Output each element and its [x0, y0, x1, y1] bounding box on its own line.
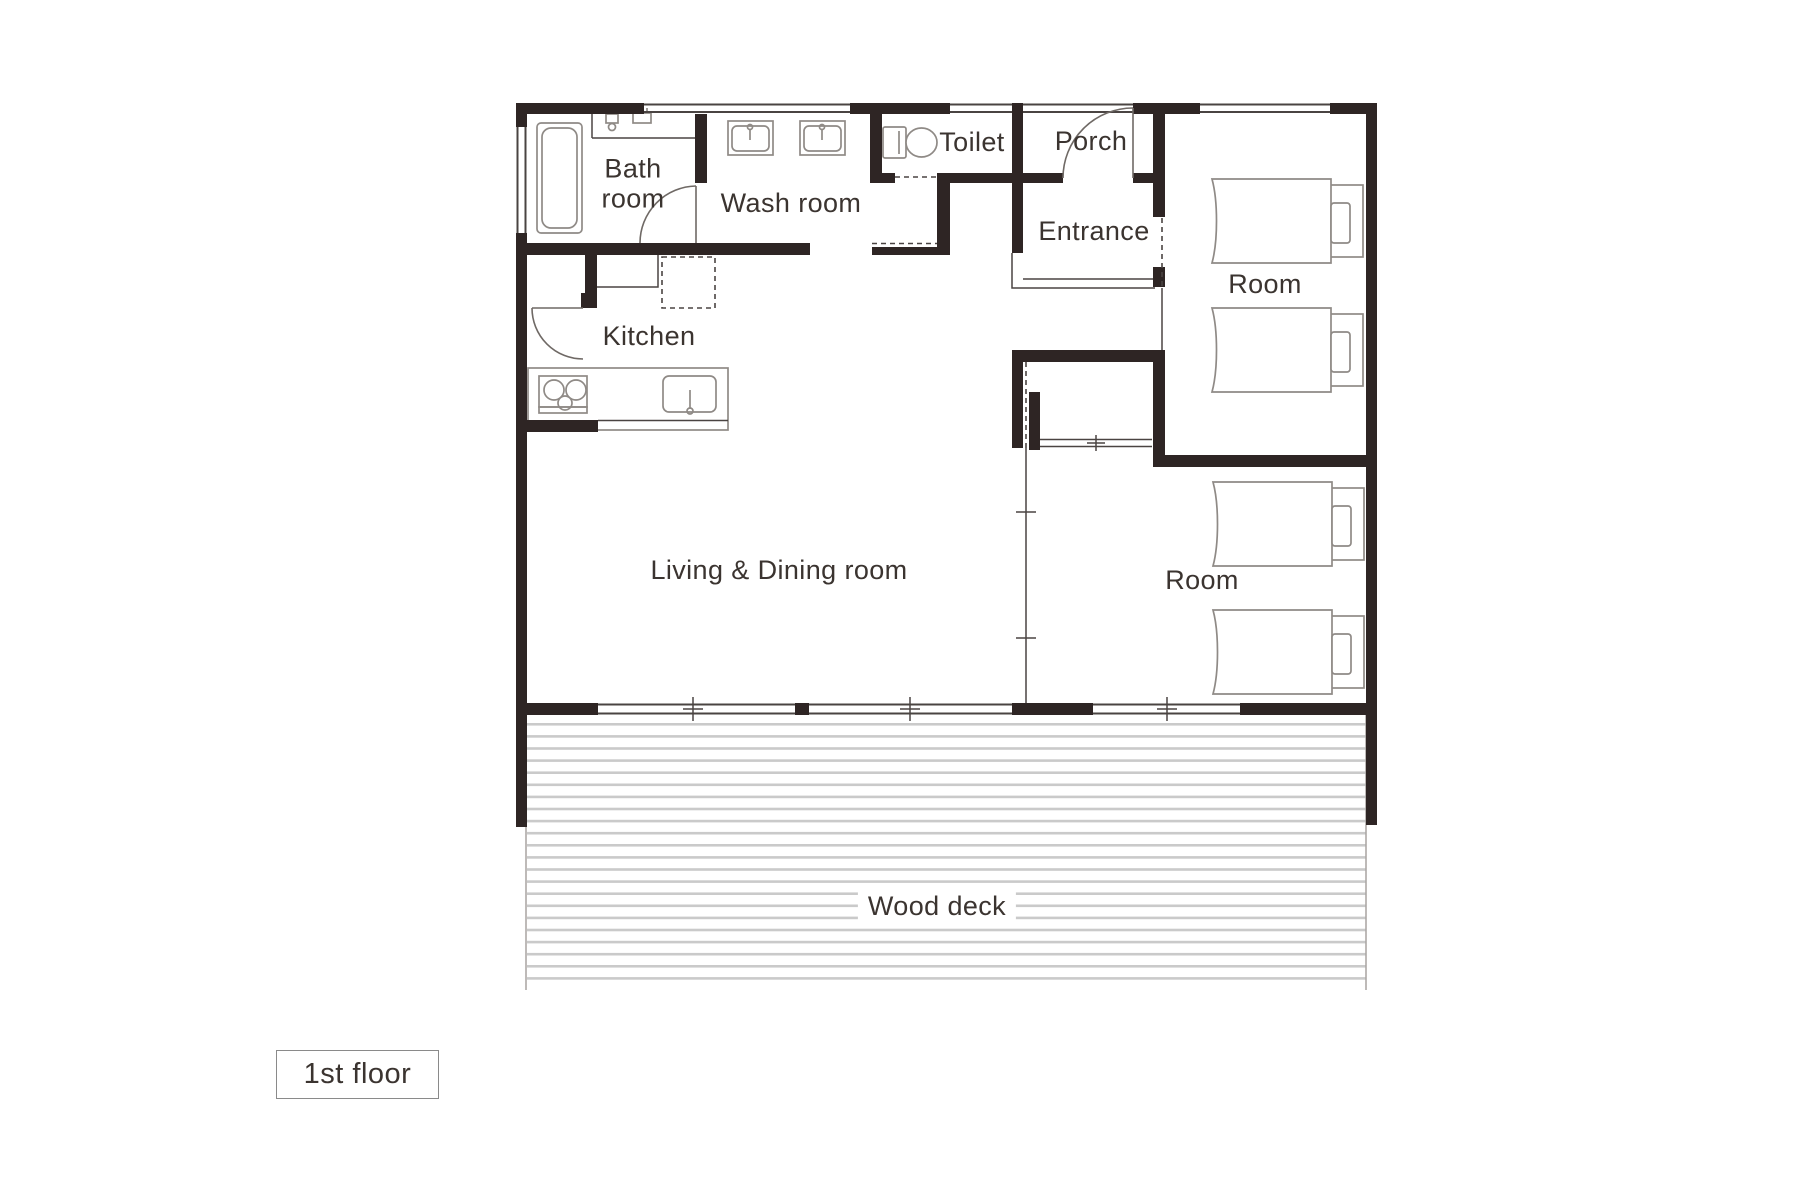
- floor-plan: Bath room Wash room Toilet Porch Entranc…: [0, 0, 1800, 1200]
- wall-segment: [850, 103, 950, 114]
- wall-segment: [870, 114, 882, 183]
- deck-board-line: [527, 808, 1366, 811]
- deck-board-line: [527, 747, 1366, 750]
- deck-board-line: [527, 929, 1366, 932]
- washroom-sinks: [728, 121, 845, 155]
- wall-segment: [1012, 103, 1023, 253]
- wall-segment: [1023, 173, 1063, 183]
- wall-segment: [795, 703, 809, 715]
- closet-wall: [1012, 350, 1023, 448]
- closet-pocket-wall: [1029, 392, 1040, 450]
- wall-segment: [516, 103, 644, 114]
- room-label-porch: Porch: [1055, 127, 1128, 157]
- shower-tap-icon: [609, 124, 616, 131]
- deck-board-line: [527, 965, 1366, 968]
- shower-tap-icon: [606, 114, 618, 123]
- wall-segment: [516, 703, 598, 715]
- deck-board-line: [527, 771, 1366, 774]
- bed-pillow: [1332, 506, 1351, 546]
- toilet-bowl: [906, 128, 937, 157]
- shower-mixer-icon: [633, 113, 651, 123]
- bed-blanket: [1212, 308, 1331, 392]
- bed-pillow: [1331, 332, 1350, 372]
- deck-board-line: [527, 880, 1366, 883]
- wall-segment: [1133, 103, 1200, 114]
- closet-wall: [1012, 350, 1163, 362]
- deck-board-line: [527, 735, 1366, 738]
- room-label-room-top: Room: [1228, 270, 1302, 300]
- deck-board-line: [527, 723, 1366, 726]
- bathtub: [537, 123, 582, 233]
- bathroom-label-line2: room: [601, 184, 664, 214]
- wall-segment: [1240, 703, 1377, 715]
- wall-segment: [695, 114, 707, 183]
- bathroom-label-line1: Bath: [601, 154, 664, 184]
- bed-pillow: [1332, 634, 1351, 674]
- wall-segment: [937, 177, 950, 255]
- room-label-room-bottom: Room: [1165, 566, 1239, 596]
- deck-board-line: [527, 868, 1366, 871]
- wall-segment: [516, 233, 527, 827]
- deck-board-line: [527, 796, 1366, 799]
- bed-blanket: [1212, 179, 1331, 263]
- kitchen-nook-line: [597, 255, 658, 287]
- floor-title-box: 1st floor: [276, 1050, 439, 1099]
- room-label-washroom: Wash room: [721, 189, 862, 219]
- room-label-kitchen: Kitchen: [603, 322, 696, 352]
- deck-board-line: [527, 844, 1366, 847]
- wall-segment: [1153, 267, 1165, 287]
- deck-board-line: [527, 832, 1366, 835]
- deck-board-line: [527, 820, 1366, 823]
- wall-segment: [581, 293, 597, 308]
- toilet-fixture: [883, 127, 937, 158]
- pantry-door-arc: [532, 308, 583, 359]
- bed-blanket: [1213, 482, 1332, 566]
- wall-segment: [1153, 350, 1165, 467]
- wall-segment: [516, 103, 527, 127]
- deck-board-line: [527, 977, 1366, 980]
- wall-segment: [1153, 455, 1377, 467]
- entrance-step: [1012, 253, 1162, 350]
- deck-board-line: [527, 856, 1366, 859]
- wood-deck-stripes: [527, 723, 1366, 980]
- wall-segment: [516, 243, 810, 255]
- step-outer-line: [1012, 253, 1155, 288]
- toilet-tank: [883, 127, 906, 158]
- deck-board-line: [527, 759, 1366, 762]
- bed-pillow: [1331, 203, 1350, 243]
- deck-board-line: [527, 784, 1366, 787]
- window-tick: [683, 697, 1177, 721]
- wall-segment: [1133, 173, 1153, 183]
- sliding-door-panel: [872, 247, 937, 255]
- wall-segment: [870, 173, 895, 183]
- room-label-toilet: Toilet: [939, 128, 1004, 158]
- refrigerator-space: [662, 257, 715, 308]
- floor-plan-drawing: [0, 0, 1800, 1200]
- deck-board-line: [527, 953, 1366, 956]
- partitions: [1016, 435, 1152, 703]
- room-label-living-dining: Living & Dining room: [650, 556, 907, 586]
- deck-board-line: [527, 941, 1366, 944]
- bed-blanket: [1213, 610, 1332, 694]
- wall-segment: [1012, 703, 1093, 715]
- wall-segment: [516, 420, 598, 432]
- room-label-wood-deck: Wood deck: [858, 890, 1016, 924]
- beds: [1212, 179, 1364, 694]
- wall-segment: [1153, 103, 1165, 217]
- floor-title: 1st floor: [304, 1058, 412, 1091]
- room-label-entrance: Entrance: [1038, 217, 1149, 247]
- room-label-bathroom: Bath room: [601, 154, 664, 213]
